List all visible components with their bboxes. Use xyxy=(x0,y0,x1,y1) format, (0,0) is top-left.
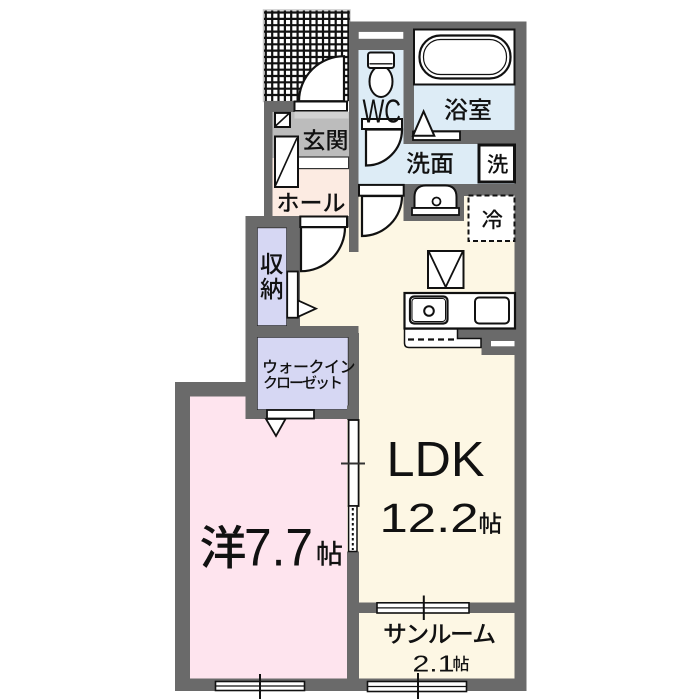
svg-text:2.1: 2.1 xyxy=(413,651,455,677)
svg-text:12.2: 12.2 xyxy=(380,495,479,541)
svg-text:WC: WC xyxy=(363,93,402,130)
svg-text:7.7: 7.7 xyxy=(244,519,313,578)
svg-text:LDK: LDK xyxy=(387,433,485,487)
